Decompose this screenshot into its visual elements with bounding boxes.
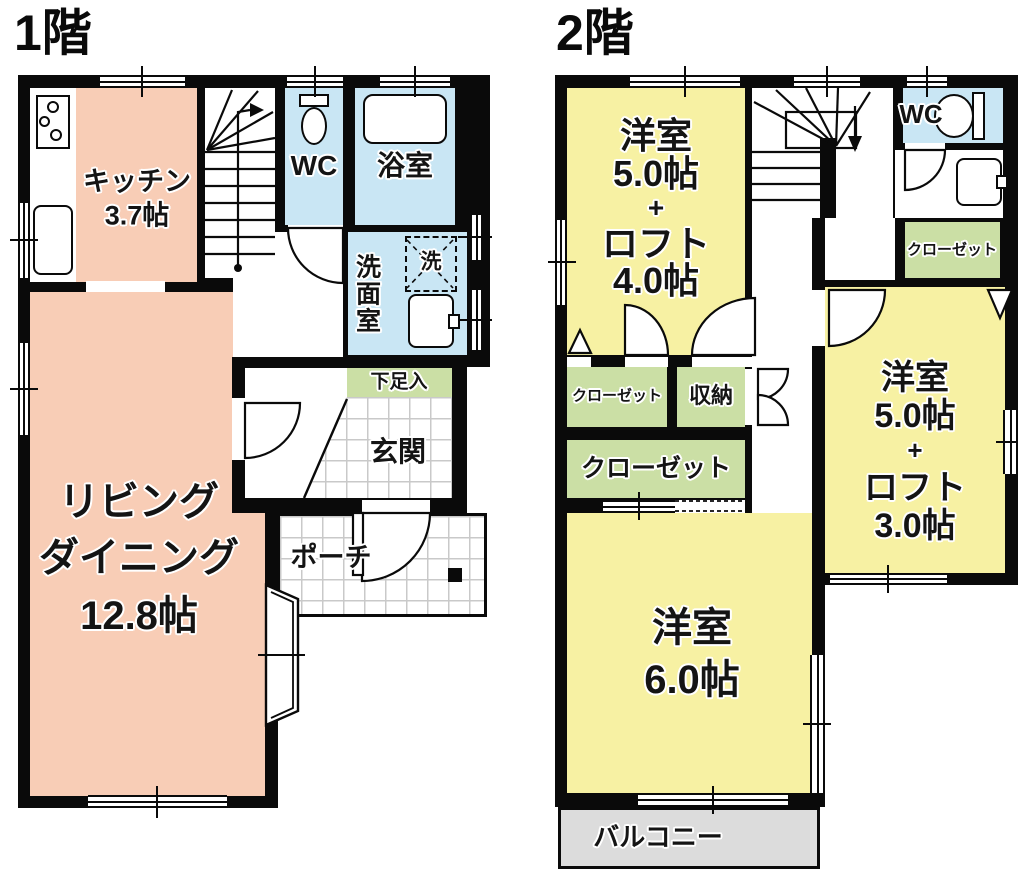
kitchen-pass-through	[86, 281, 165, 292]
window-bedroom1-left	[555, 220, 567, 305]
bedroom2-plus-label: +	[907, 437, 922, 463]
closet-a-label: クローゼット	[572, 389, 662, 404]
toilet-tank-icon	[299, 94, 329, 107]
kitchen-size-label: 3.7帖	[105, 203, 170, 230]
balcony-label: バルコニー	[593, 824, 722, 850]
stair-divider-wall	[820, 138, 836, 218]
bedroom1-loft-label: ロフト	[602, 226, 710, 262]
bedroom3-size-label: 6.0帖	[644, 660, 740, 700]
window-wc-top	[287, 75, 343, 88]
window-closet-b-bottom	[603, 500, 675, 513]
shoe-cabinet-label: 下足入	[370, 373, 427, 392]
genkan-label: 玄関	[370, 438, 426, 466]
closet-right-label: クローゼット	[907, 243, 997, 258]
washing-machine-label: 洗	[421, 252, 442, 273]
window-washroom-right	[470, 290, 483, 350]
f2-corridor	[752, 218, 812, 513]
stove-burner-icon	[50, 129, 62, 141]
floor2-title: 2階	[556, 8, 634, 58]
window-living-left	[18, 343, 30, 435]
storage-door-opening	[745, 369, 752, 425]
bedroom3-opening	[752, 498, 812, 513]
kitchen-sink-icon	[33, 205, 73, 275]
window-stairs-top	[794, 75, 860, 88]
window-wc2-top	[907, 75, 947, 88]
window-right-upper	[470, 215, 483, 260]
bedroom1-size-label: 5.0帖	[613, 156, 699, 192]
window-kitchen-left	[18, 203, 30, 278]
window-bedroom1-top	[630, 75, 740, 88]
stove-burner-icon	[47, 101, 59, 113]
closet-b-open-bottom	[675, 500, 745, 513]
genkan-door-opening	[232, 398, 245, 460]
floor1-title: 1階	[14, 8, 92, 58]
bedroom3	[567, 513, 812, 793]
bedroom2-loft-label: ロフト	[864, 471, 966, 505]
wc2-door-opening	[905, 143, 945, 150]
closet-b-label: クローゼット	[581, 457, 731, 482]
bathtub-icon	[363, 94, 447, 144]
porch-label: ポーチ	[291, 545, 372, 572]
bedroom3-label: 洋室	[652, 608, 732, 648]
washbasin-tap-icon	[448, 314, 460, 329]
storage-label: 収納	[689, 385, 733, 407]
bedroom2-label: 洋室	[881, 361, 949, 395]
bathroom-label: 浴室	[377, 152, 433, 180]
stove-burner-icon	[39, 116, 50, 127]
bedroom1-door-opening-c	[692, 357, 755, 367]
wc-door-opening	[288, 225, 343, 232]
window-bedroom3-bottom	[638, 793, 788, 807]
bedroom2-loftsize-label: 3.0帖	[874, 509, 955, 543]
window-kitchen-top	[100, 75, 185, 88]
bedroom2-size-label: 5.0帖	[874, 399, 955, 433]
washbasin2-tap-icon	[996, 175, 1008, 189]
living-label-2: ダイニング	[39, 538, 239, 578]
washroom-label: 洗面室	[354, 254, 379, 335]
kitchen-label: キッチン	[83, 169, 191, 196]
wc2-label: WC	[899, 101, 942, 127]
window-bedroom2-bottom	[830, 573, 947, 585]
bedroom1-door-opening-b	[625, 357, 668, 367]
window-living-bottom	[88, 795, 227, 808]
floor-plan: 1階 2階 キッチン 3.7帖 WC 浴室 洗面室 洗 下足入 玄関 リビング …	[0, 0, 1024, 881]
living-size-label: 12.8帖	[80, 596, 198, 636]
window-bath-top	[380, 75, 450, 88]
bedroom1-door-opening-a	[567, 357, 591, 367]
wc1-label: WC	[291, 152, 338, 180]
window-bedroom3-right	[810, 655, 825, 793]
toilet2-tank-icon	[972, 92, 985, 140]
porch-post	[448, 568, 462, 582]
f1-staircase	[205, 88, 275, 278]
entrance-door-opening	[362, 500, 430, 513]
living-label-1: リビング	[59, 482, 219, 522]
bedroom2-door-opening	[812, 290, 825, 346]
bedroom1-plus-label: +	[648, 194, 664, 222]
f2-hall-landing	[825, 218, 895, 280]
window-bedroom2-right	[1003, 410, 1018, 474]
bedroom1-loftsize-label: 4.0帖	[613, 263, 699, 299]
toilet-bowl-icon	[301, 107, 327, 145]
bedroom1-label: 洋室	[620, 118, 692, 154]
